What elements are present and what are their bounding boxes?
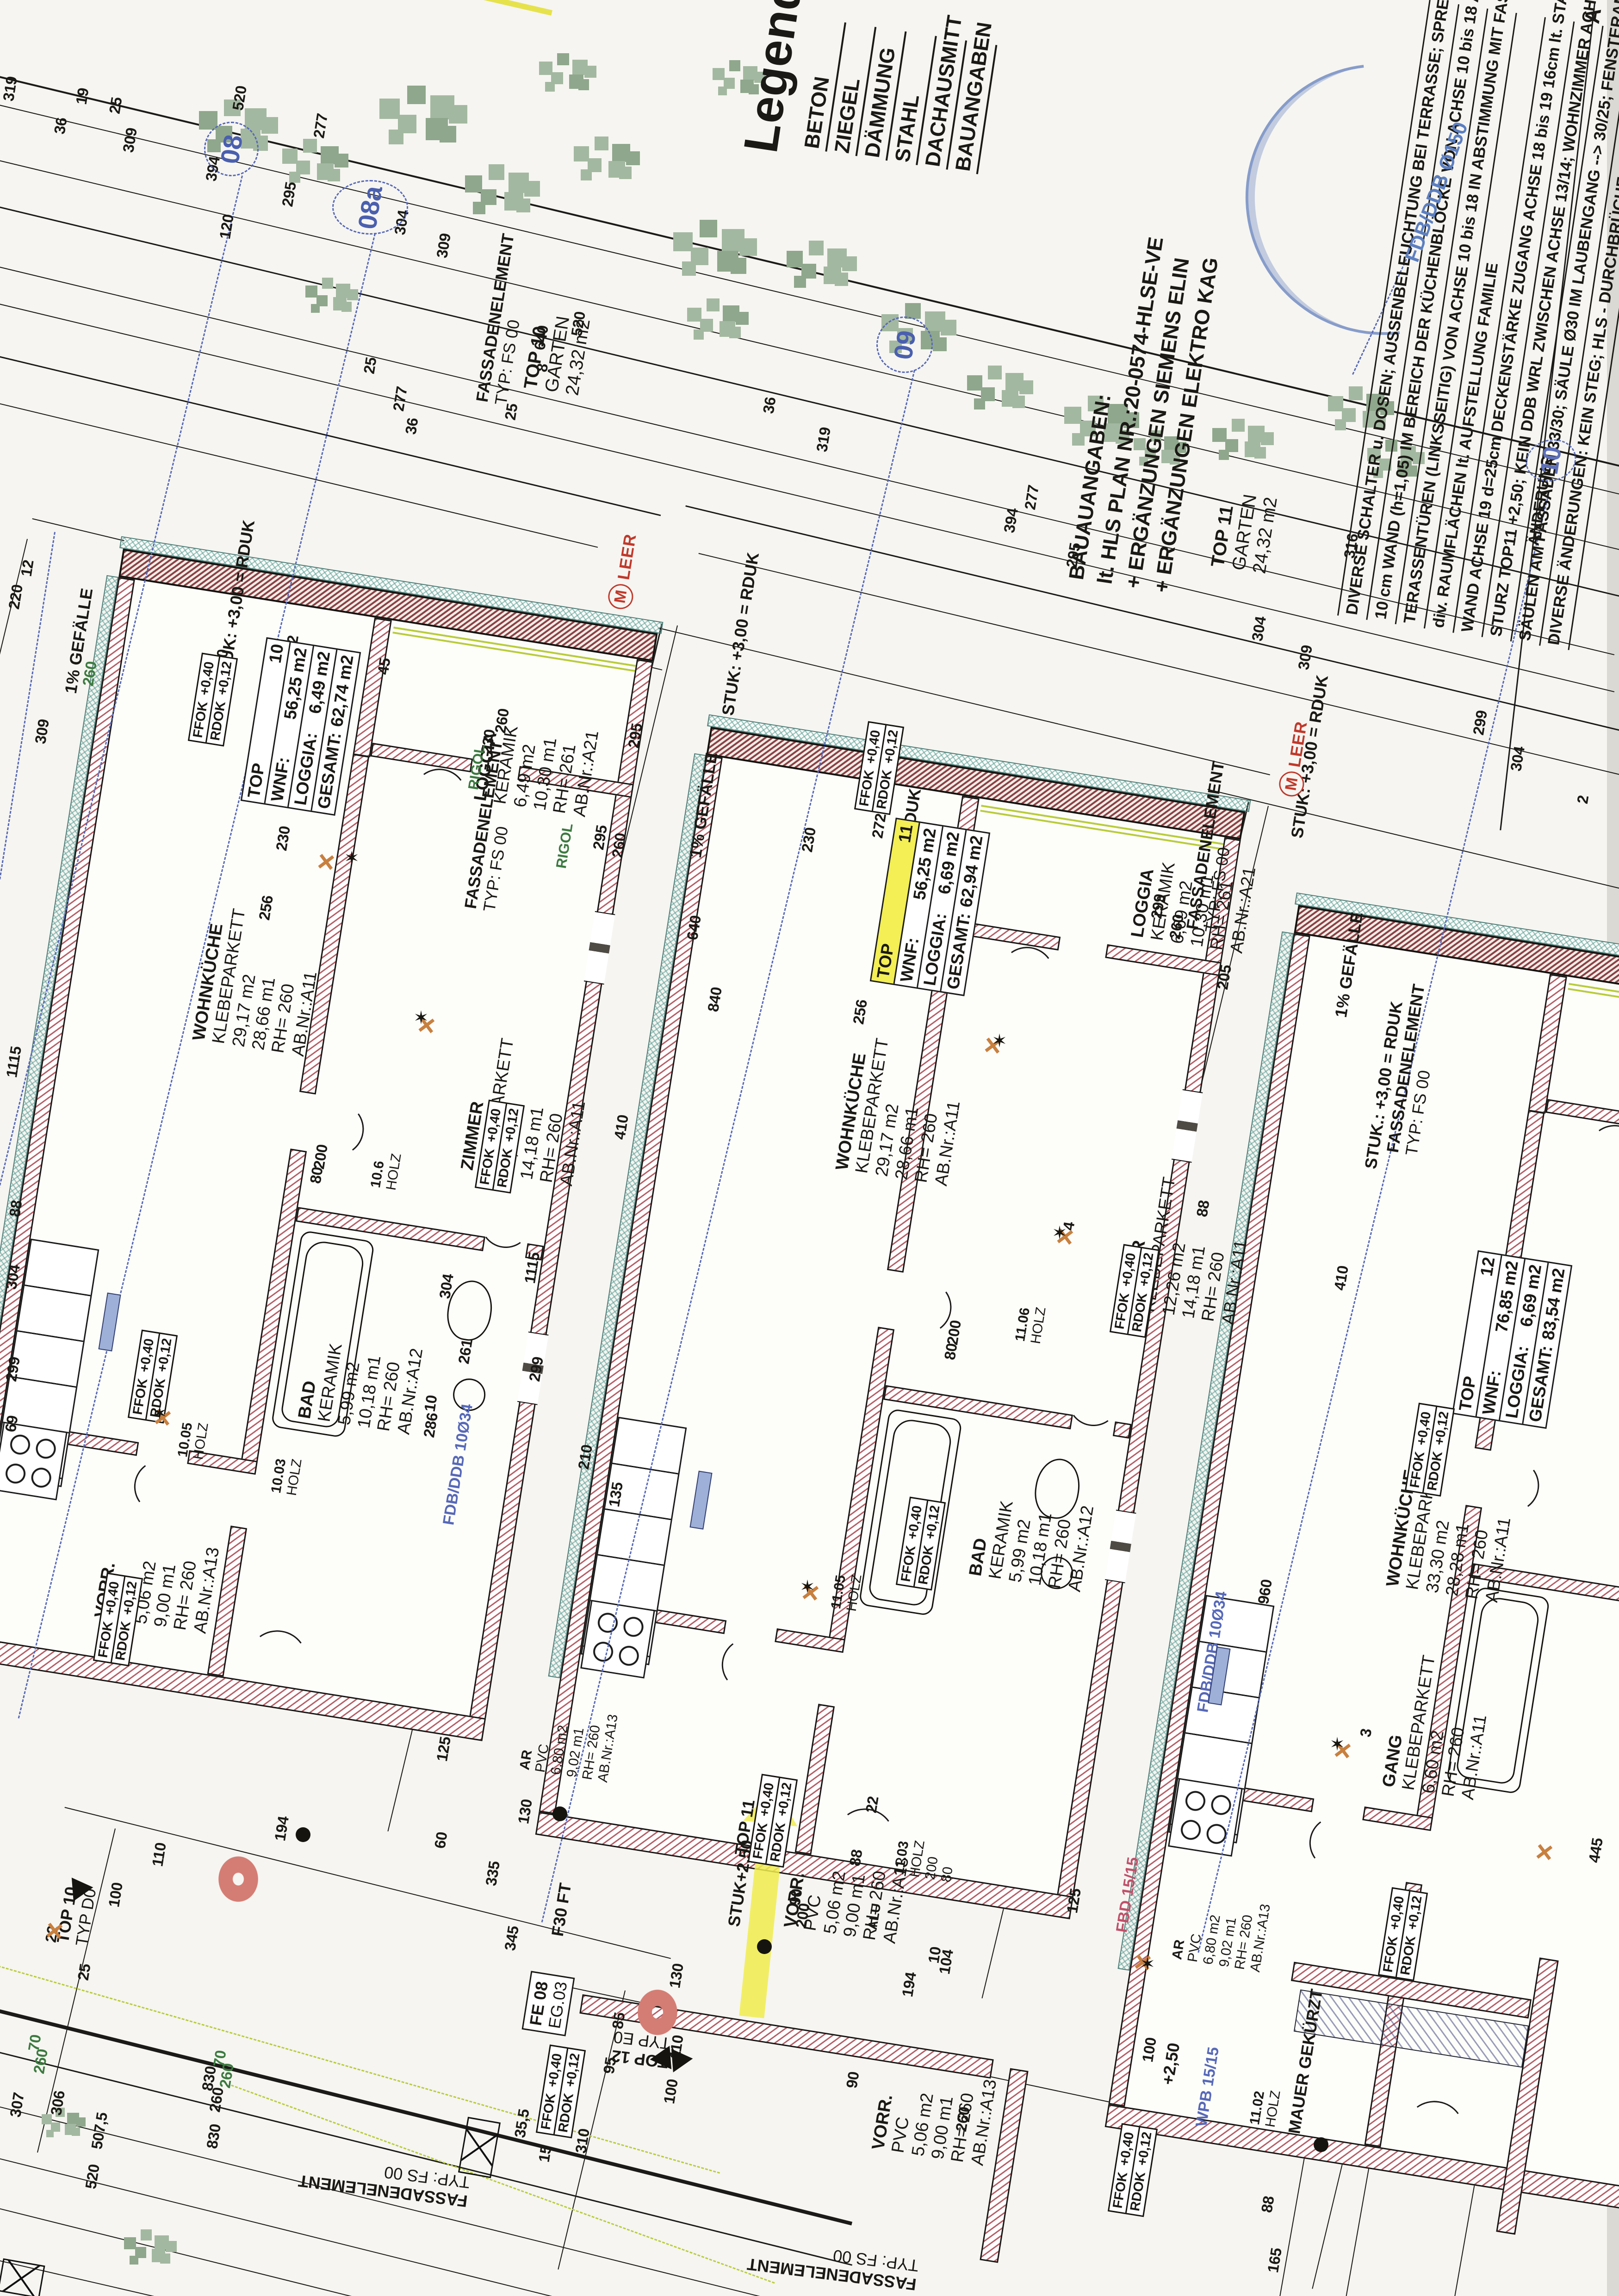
- dimension: 304: [1507, 745, 1528, 773]
- dimension: 110: [149, 1841, 170, 1868]
- plan-note-label: F30 FT: [548, 1881, 575, 1937]
- shrub-symbol: [967, 366, 1036, 414]
- light-symbol-icon: ✶: [413, 1007, 429, 1029]
- m-circle-icon: M: [607, 582, 635, 611]
- dimension: 319: [813, 426, 834, 453]
- dimension: 205: [1214, 964, 1235, 991]
- dimension: 35,5: [511, 2108, 533, 2139]
- axis-number: 08a: [352, 184, 389, 231]
- door-swing-arc: [1064, 1371, 1123, 1430]
- wall-segment: [0, 1633, 486, 1741]
- hole-punch-mark: [216, 1854, 261, 1905]
- room-label: WOHNKÜCHEKLEBEPARKETT29,17 m228,66 m1RH=…: [189, 904, 329, 1058]
- plan-line: [0, 2260, 789, 2296]
- dimension: 36: [50, 116, 70, 135]
- room-label: VORR.PVC5,06 m29,00 m1RH= 260AB.Nr.:A13: [868, 2062, 1001, 2167]
- shrub-symbol: [379, 86, 472, 150]
- shrub-symbol: [282, 139, 352, 187]
- dimension: 80: [941, 1342, 961, 1361]
- column-point: [1314, 2137, 1328, 2152]
- revision-x-mark: ×: [43, 1912, 65, 1948]
- hole-punch-mark: [635, 1987, 680, 2038]
- dimension: 25: [360, 356, 380, 375]
- wall-segment: [118, 549, 658, 662]
- wall-segment: [1113, 1421, 1132, 1439]
- room-label: GANGKLEBEPARKETT6,60 m2RH= 260AB.Nr.:A11: [1379, 1651, 1499, 1801]
- axis-number: 09: [887, 328, 922, 361]
- room-label: WOHNKÜCHEKLEBEPARKETT33,30 m228,28 m1RH=…: [1383, 1450, 1523, 1604]
- floor-plan-scan: 3193619253093942955201202776408520252772…: [0, 0, 1619, 2296]
- dimension: 309: [119, 127, 141, 154]
- light-symbol-icon: ✶: [344, 848, 360, 869]
- dimension: 25: [74, 1962, 94, 1981]
- axis-marker: 08: [204, 122, 259, 176]
- dimension: 104: [936, 1948, 957, 1976]
- dimension: 319: [0, 75, 21, 103]
- dimension: 120: [216, 213, 237, 241]
- plan-line: [0, 399, 598, 548]
- door-label: 10.6HOLZ: [368, 1150, 405, 1191]
- dimension: 260: [608, 832, 630, 859]
- door-label: 11.02HOLZ: [1247, 2087, 1284, 2128]
- room-label: BADKERAMIK5,99 m210,18 m1RH= 260AB.Nr.:A…: [295, 1331, 427, 1436]
- dimension: 10: [421, 1394, 440, 1413]
- light-symbol-icon: ✶: [1140, 1954, 1155, 1975]
- dimension: 507,5: [88, 2111, 111, 2150]
- dimension: 194: [271, 1815, 292, 1843]
- dimension: 410: [611, 1114, 632, 1141]
- dimension: 345: [501, 1925, 522, 1952]
- axis-marker: 09: [876, 316, 933, 373]
- shrub-symbol: [787, 241, 861, 292]
- dimension: 310: [572, 2128, 593, 2155]
- dimension: 295: [625, 722, 646, 750]
- axis-dash-line: [0, 532, 56, 880]
- room-label: ARPVC6,80 m29,02 m1RH= 260AB.Nr.:A13: [1169, 1891, 1274, 1973]
- window-opening: [584, 911, 615, 985]
- wall-segment: [1105, 944, 1222, 976]
- plan-note-label-line: F30 FT: [548, 1881, 575, 1937]
- door-label: 10.05HOLZ: [175, 1419, 212, 1461]
- column-point: [296, 1827, 310, 1842]
- plan-note-label: FASSADENELEMENTTYP: FS 00: [746, 2236, 919, 2294]
- dimension: 335: [482, 1860, 503, 1887]
- dimension: 277: [310, 112, 331, 140]
- light-symbol-icon: ✶: [992, 1030, 1007, 1052]
- leer-text: LEER: [614, 533, 640, 581]
- window-opening: [1105, 1510, 1136, 1583]
- shrub-symbol: [465, 164, 544, 219]
- dimension: 100: [660, 2078, 682, 2105]
- shrub-symbol: [687, 298, 752, 344]
- shrub-symbol: [673, 220, 761, 281]
- door-swing-arc: [477, 1193, 535, 1252]
- plan-line: [1208, 789, 1619, 898]
- garden-label: TOP 10GARTEN24,32 m2: [520, 311, 595, 397]
- light-symbol-icon: ✶: [152, 1403, 167, 1424]
- dimension: 520: [82, 2163, 103, 2191]
- level-stamp: FFOK+0,40RDOK+0,12: [536, 2045, 586, 2139]
- dimension: 277: [1021, 484, 1042, 511]
- dimension: 194: [899, 1971, 920, 1998]
- door-swing-arc: [718, 1634, 779, 1695]
- dimension: 299: [526, 1356, 547, 1383]
- room-label: BADKERAMIK5,99 m210,18 m1RH= 260AB.Nr.:A…: [966, 1489, 1098, 1593]
- room-label: ARPVC6,80 m29,02 m1RH= 260AB.Nr.:A13: [517, 1701, 621, 1784]
- dimension: 125: [433, 1736, 454, 1763]
- dimension: 125: [1063, 1887, 1085, 1915]
- light-symbol-icon: ✶: [1052, 1222, 1067, 1244]
- leer-text: LEER: [1284, 720, 1311, 769]
- shrub-symbol: [574, 137, 643, 185]
- dimension: 277: [390, 385, 411, 413]
- axis-marker: 08a: [332, 180, 408, 235]
- dimension: 299: [1470, 709, 1491, 737]
- plan-note-label: FE 08EG.03: [522, 1971, 575, 2036]
- shrub-symbol: [539, 53, 599, 95]
- wall-segment: [1528, 974, 1567, 1114]
- empty-conduit-mark: MLEER: [607, 532, 643, 611]
- wall-segment: [370, 743, 473, 772]
- column-point: [757, 1939, 772, 1954]
- stove: [1168, 1778, 1243, 1856]
- door-label: 11.06HOLZ: [1012, 1303, 1049, 1345]
- shrub-symbol: [1212, 419, 1277, 464]
- dimension: 45: [374, 657, 394, 676]
- dimension: 15: [535, 2144, 555, 2163]
- rigol-drain-band: [1568, 980, 1619, 1028]
- plan-note-label: STUK: +3,00 = RDUK: [718, 551, 763, 717]
- dimension: 260: [30, 2048, 51, 2075]
- dimension: 394: [1000, 507, 1022, 534]
- room-label: VORR.PVC5,06 m29,00 m1RH= 260AB.Nr.:A13: [781, 1840, 913, 1945]
- dimension: 90: [843, 2070, 862, 2089]
- stove: [0, 1421, 68, 1500]
- dimension: 36: [402, 416, 422, 435]
- dimension: 260: [206, 2086, 227, 2114]
- light-symbol-icon: ✶: [1329, 1734, 1345, 1755]
- dimension: 19: [72, 87, 92, 105]
- door-label: 11.05HOLZ: [828, 1571, 865, 1613]
- shrub-symbol: [124, 2229, 180, 2268]
- door-swing-arc: [996, 943, 1058, 1005]
- level-stamp: FFOK+0,40RDOK+0,12: [1108, 2123, 1158, 2217]
- dimension: 88: [6, 1199, 25, 1218]
- wall-segment: [706, 727, 1245, 840]
- dimension: 25: [105, 96, 125, 115]
- column-point: [552, 1806, 567, 1821]
- wall-segment: [1545, 1099, 1619, 1129]
- dimension: 220: [5, 583, 26, 611]
- shrub-symbol: [305, 278, 361, 316]
- dimension: 130: [666, 1962, 687, 1990]
- dimension: 309: [31, 718, 53, 745]
- dimension: 304: [1248, 615, 1270, 643]
- axis-number: 08: [214, 132, 248, 166]
- dimension: 309: [433, 232, 454, 260]
- door-swing-arc: [1306, 1812, 1367, 1874]
- room-label: WOHNKÜCHEKLEBEPARKETT29,17 m228,66 m1RH=…: [832, 1034, 973, 1187]
- wall-segment: [353, 618, 391, 757]
- door-label: 10.03HOLZ: [268, 1455, 305, 1497]
- dimension: 295: [279, 181, 300, 208]
- dimension: 307: [6, 2091, 28, 2119]
- dimension: 12: [17, 558, 37, 577]
- shaft-element: [0, 2259, 45, 2296]
- dimension: 88: [1258, 2195, 1278, 2214]
- garden-label: TOP 11GARTEN24,32 m2: [1207, 489, 1282, 575]
- dimension: 2: [1574, 794, 1592, 805]
- dimension: 100: [105, 1881, 126, 1909]
- wall-segment: [1105, 2104, 1619, 2211]
- dimension: 60: [431, 1831, 451, 1849]
- wall-segment: [795, 1704, 835, 1855]
- yellow-highlight-dash: [463, 0, 552, 16]
- dimension: 36: [759, 396, 779, 415]
- m-circle-icon: M: [1278, 769, 1306, 798]
- dimension: 165: [1264, 2247, 1285, 2274]
- dimension: 830: [203, 2123, 224, 2150]
- dimension: 80: [306, 1166, 326, 1185]
- window-opening: [1172, 1089, 1203, 1163]
- legend-entries: BETONZIEGELDÄMMUNGSTAHLDACHAUSMITTBAUANG…: [797, 18, 997, 174]
- dimension: 1115: [3, 1045, 25, 1079]
- door-swing-arc: [1583, 1121, 1619, 1184]
- door-swing-arc: [130, 1456, 192, 1517]
- door-swing-arc: [408, 765, 471, 827]
- dimension: 85: [608, 2011, 628, 2030]
- plan-note-label-line: STUK: +3,00 = RDUK: [718, 551, 763, 717]
- dimension: 69: [1, 1414, 21, 1433]
- dimension: 22: [862, 1795, 882, 1814]
- dimension: 309: [1295, 644, 1316, 671]
- dimension: 130: [515, 1798, 536, 1825]
- light-symbol-icon: ✶: [800, 1576, 815, 1598]
- stove: [580, 1600, 655, 1678]
